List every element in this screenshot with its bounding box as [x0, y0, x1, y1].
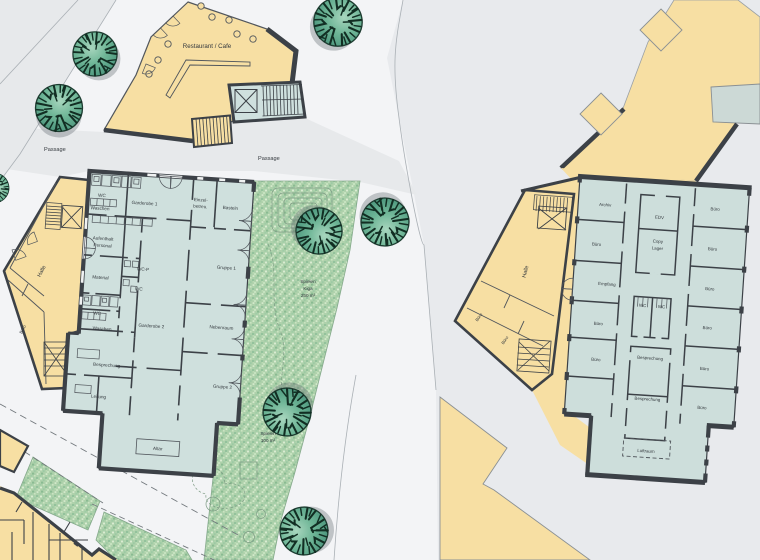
svg-text:Büro: Büro	[593, 321, 603, 327]
svg-text:Büro: Büro	[697, 405, 707, 411]
svg-text:Büro: Büro	[591, 357, 601, 363]
svg-text:Einzel-: Einzel-	[194, 197, 209, 203]
svg-text:Lager: Lager	[652, 245, 664, 251]
svg-text:WC: WC	[658, 304, 666, 309]
svg-text:WC: WC	[93, 311, 102, 317]
svg-text:100 m²: 100 m²	[261, 438, 276, 443]
svg-text:Büro: Büro	[700, 366, 710, 372]
svg-text:Basteln: Basteln	[223, 205, 239, 211]
svg-text:Büro: Büro	[708, 246, 718, 252]
svg-text:Büro: Büro	[702, 325, 712, 331]
svg-text:Kiga: Kiga	[303, 286, 313, 291]
svg-text:WC: WC	[98, 193, 107, 199]
svg-text:Büro: Büro	[592, 241, 602, 247]
svg-text:Copy: Copy	[653, 238, 664, 244]
svg-text:Restaurant / Cafe: Restaurant / Cafe	[183, 43, 232, 50]
svg-text:Passage: Passage	[44, 147, 66, 153]
svg-text:betreu.: betreu.	[193, 203, 208, 209]
svg-text:WC: WC	[639, 303, 647, 308]
svg-text:WC: WC	[135, 286, 144, 292]
svg-text:Büro: Büro	[705, 286, 715, 292]
svg-text:EDV: EDV	[655, 215, 664, 221]
svg-text:WC-P: WC-P	[137, 266, 150, 272]
svg-text:Leitung: Leitung	[91, 394, 107, 400]
svg-text:Spielen: Spielen	[300, 279, 316, 284]
svg-text:Passage: Passage	[258, 156, 280, 162]
svg-text:250 m²: 250 m²	[301, 293, 316, 298]
svg-text:Archiv: Archiv	[599, 202, 612, 208]
svg-text:Büro: Büro	[710, 206, 720, 212]
svg-text:Altar: Altar	[153, 446, 163, 452]
